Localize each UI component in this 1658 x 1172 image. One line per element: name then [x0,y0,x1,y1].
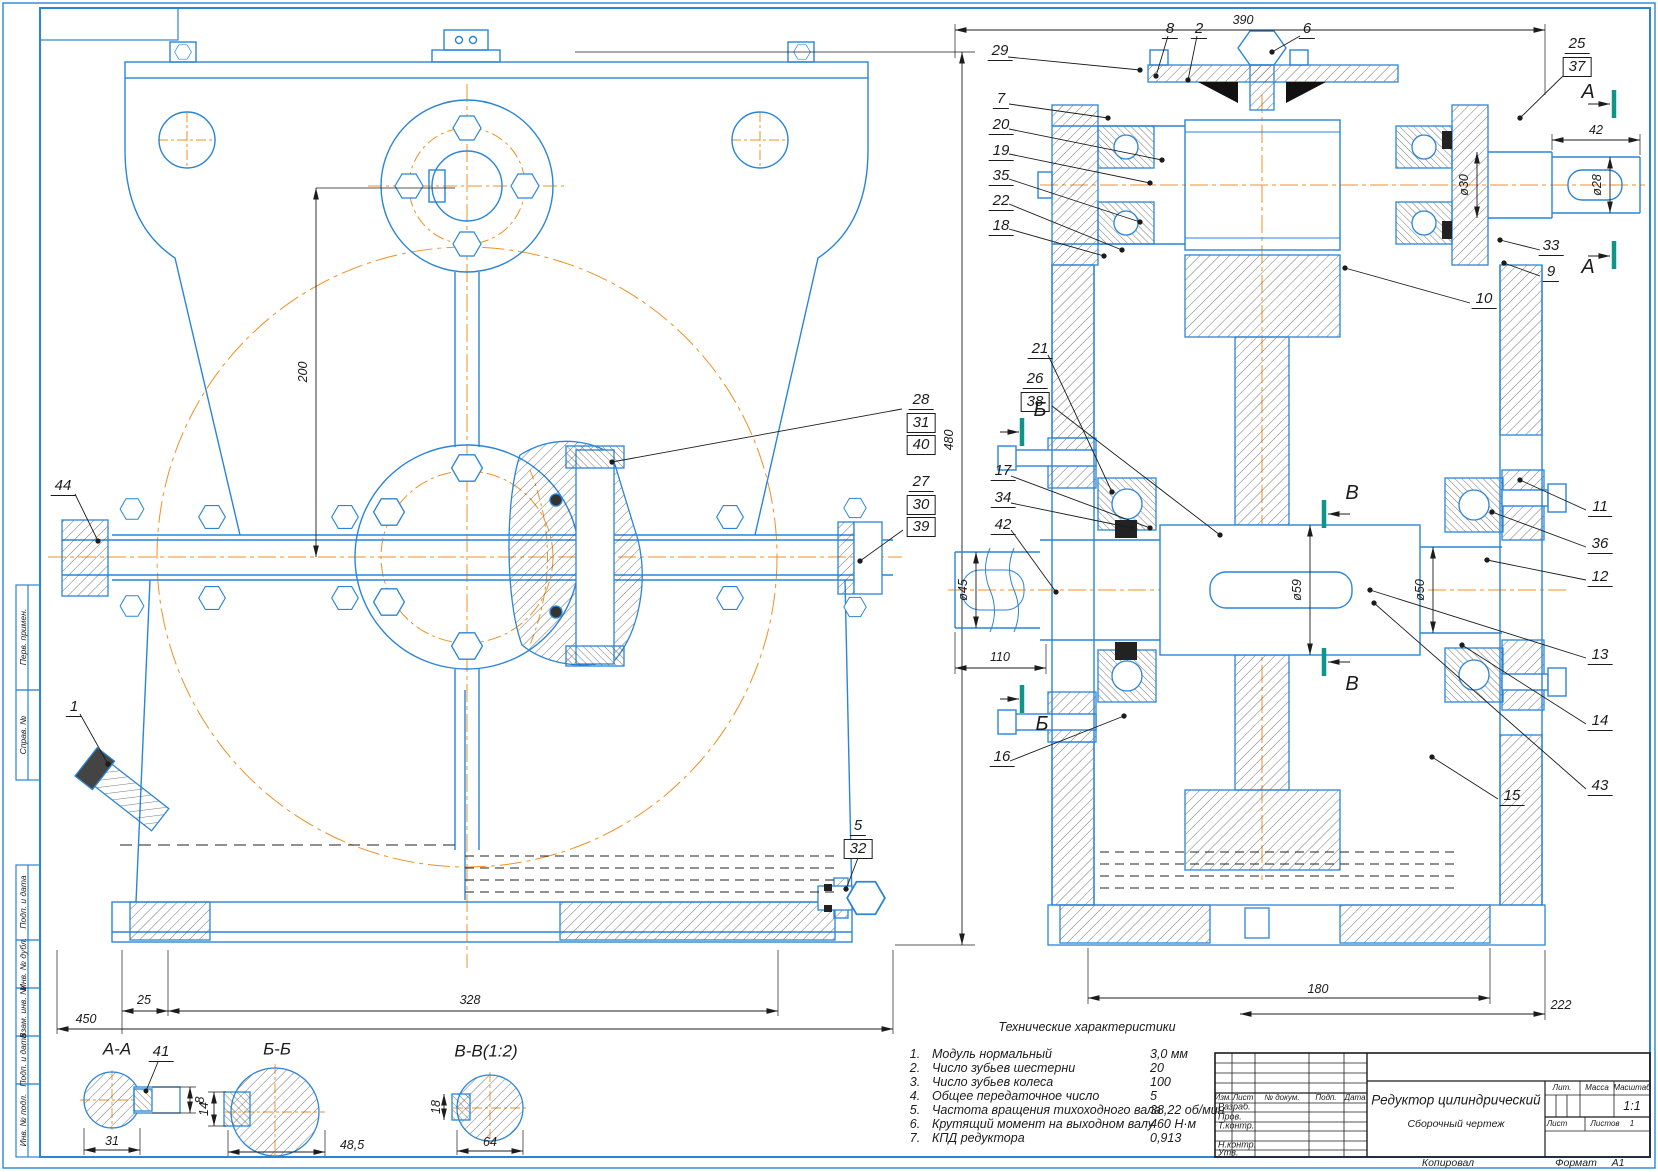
callout-5: 5 [850,818,866,836]
tech-row-name: Число зубьев шестерни [932,1062,1075,1075]
titleblock-sheets-label: Листов [1590,1120,1619,1128]
section-marker-b-top: Б [1033,400,1046,420]
callout-8: 8 [1162,21,1178,39]
tech-row-value: 38,22 об/мин [1150,1104,1225,1117]
callout-42: 42 [991,517,1016,535]
dim-25: 25 [137,994,151,1007]
titleblock-sheets-value: 1 [1630,1120,1634,1128]
tech-row-value: 20 [1150,1062,1164,1075]
tech-row-num: 6. [910,1118,920,1131]
cut-dim-64: 64 [483,1136,497,1149]
dim-200: 200 [297,362,310,383]
frame-label-podp-data-1: Подп. и дата [19,875,28,928]
dim-42: 42 [1589,124,1603,137]
titleblock-col-dokum: № докум. [1264,1094,1299,1102]
front-view-linework [48,30,902,968]
tech-row-num: 7. [910,1132,920,1145]
frame-label-inv-podl: Инв. № подл. [19,1094,28,1147]
cut-label-vv: В-В(1:2) [454,1043,517,1060]
callout-16: 16 [990,749,1015,767]
cut-dim-31: 31 [105,1135,119,1148]
tech-row-name: Общее передаточное число [932,1090,1099,1103]
callout-7: 7 [993,91,1009,109]
callout-19: 19 [989,143,1014,161]
titleblock-row-razrab: Разраб. [1218,1103,1251,1112]
frame-label-vzam-inv: Взам. инв. № [19,986,28,1039]
dim-180: 180 [1308,983,1329,996]
tech-row-num: 3. [910,1076,920,1089]
callout-22: 22 [989,193,1014,211]
dim-328: 328 [460,994,481,1007]
callout-32: 32 [844,839,873,859]
frame-label-perv-primen: Перв. примен. [19,609,28,666]
callout-17: 17 [991,463,1016,481]
callout-9: 9 [1543,264,1559,282]
tech-row-num: 1. [910,1048,920,1061]
callout-12: 12 [1588,569,1613,587]
tech-row-name: Крутящий момент на выходном валу [932,1118,1154,1131]
section-marker-b-bottom: Б [1035,714,1048,734]
drawing-sheet: 200 480 25 328 450 44 1 5 32 28 31 40 27… [0,0,1658,1172]
callout-35: 35 [989,168,1014,186]
section-marker-v-top: В [1345,483,1358,503]
tech-row-value: 3,0 мм [1150,1048,1188,1061]
tech-row-value: 0,913 [1150,1132,1181,1145]
dim-222: 222 [1551,999,1572,1012]
callout-2: 2 [1191,21,1207,39]
cut-sections-linework [80,1062,527,1157]
titleblock-doc-title: Редуктор цилиндрический [1371,1093,1540,1107]
dim-d59: ø59 [1291,579,1304,601]
callout-27: 27 [909,474,934,492]
callout-34: 34 [991,490,1016,508]
callout-43: 43 [1588,778,1613,796]
frame-label-podp-data-2: Подп. и дата [19,1033,28,1086]
tech-row-value: 460 Н·м [1150,1118,1196,1131]
tech-row-name: Модуль нормальный [932,1048,1052,1061]
dim-390: 390 [1233,14,1254,27]
callout-29: 29 [988,43,1013,61]
callout-6: 6 [1299,21,1315,39]
callout-33: 33 [1539,238,1564,256]
callout-26: 26 [1023,371,1048,389]
callout-37: 37 [1563,57,1592,77]
drawing-canvas[interactable] [0,0,1658,1172]
callout-36: 36 [1588,536,1613,554]
kopiroval-label: Копировал [1422,1158,1474,1169]
dim-110: 110 [990,651,1010,664]
titleblock-scale-value: 1:1 [1623,1100,1640,1113]
dim-d28: ø28 [1591,174,1604,196]
section-marker-v-bottom: В [1345,674,1358,694]
format-value: А1 [1612,1158,1625,1169]
callout-14: 14 [1588,713,1613,731]
cut-dim-18: 18 [430,1100,443,1114]
tech-title: Технические характеристики [998,1021,1175,1034]
cut-label-aa: А-А [103,1041,131,1058]
cut-dim-14: 14 [198,1102,211,1116]
frame-label-sprav: Справ. № [19,716,28,755]
callout-21: 21 [1028,341,1053,359]
cut-dim-485: 48,5 [340,1139,364,1152]
dim-d50: ø50 [1414,579,1427,601]
callout-31: 31 [907,413,936,433]
titleblock-lit-label: Лит. [1553,1084,1572,1092]
callout-1: 1 [66,699,82,717]
callout-13: 13 [1588,647,1613,665]
titleblock-sheet-label: Лист [1547,1120,1568,1128]
callout-40: 40 [907,435,936,455]
callout-39: 39 [907,517,936,537]
dim-d30: ø30 [1458,174,1471,196]
callout-20: 20 [989,117,1014,135]
callout-11: 11 [1588,499,1612,517]
cut-label-bb: Б-Б [263,1041,291,1058]
titleblock-row-utv: Утв. [1218,1149,1238,1158]
tech-row-value: 5 [1150,1090,1157,1103]
tech-row-name: Число зубьев колеса [932,1076,1053,1089]
frame-label-inv-dubl: Инв. № дубл. [19,938,28,990]
section-marker-a-top: А [1581,82,1594,102]
titleblock-mass-label: Масса [1585,1084,1609,1092]
tech-row-name: Частота вращения тихоходного вала [932,1104,1161,1117]
titleblock-col-data: Дата [1344,1094,1365,1102]
tech-row-num: 5. [910,1104,920,1117]
section-view-linework [948,31,1645,945]
format-label: Формат [1555,1158,1597,1169]
tech-row-name: КПД редуктора [932,1132,1025,1145]
titleblock-row-tkontr: Т.контр. [1218,1122,1254,1131]
tech-row-num: 4. [910,1090,920,1103]
callout-15: 15 [1500,788,1525,806]
dim-450: 450 [76,1013,97,1026]
tech-row-num: 2. [910,1062,920,1075]
dim-d45: ø45 [957,579,970,601]
titleblock-doc-subtitle: Сборочный чертеж [1407,1119,1504,1130]
callout-18: 18 [989,218,1014,236]
section-marker-a-bottom: А [1581,257,1594,277]
callout-30: 30 [907,495,936,515]
tech-row-value: 100 [1150,1076,1171,1089]
callout-25: 25 [1565,36,1590,54]
callout-41: 41 [149,1044,174,1062]
titleblock-col-podp: Подп. [1315,1094,1336,1102]
titleblock-scale-label: Масштаб [1613,1084,1650,1092]
dim-480: 480 [943,430,956,451]
callout-28: 28 [909,392,934,410]
callout-44: 44 [51,478,76,496]
callout-10: 10 [1472,291,1497,309]
